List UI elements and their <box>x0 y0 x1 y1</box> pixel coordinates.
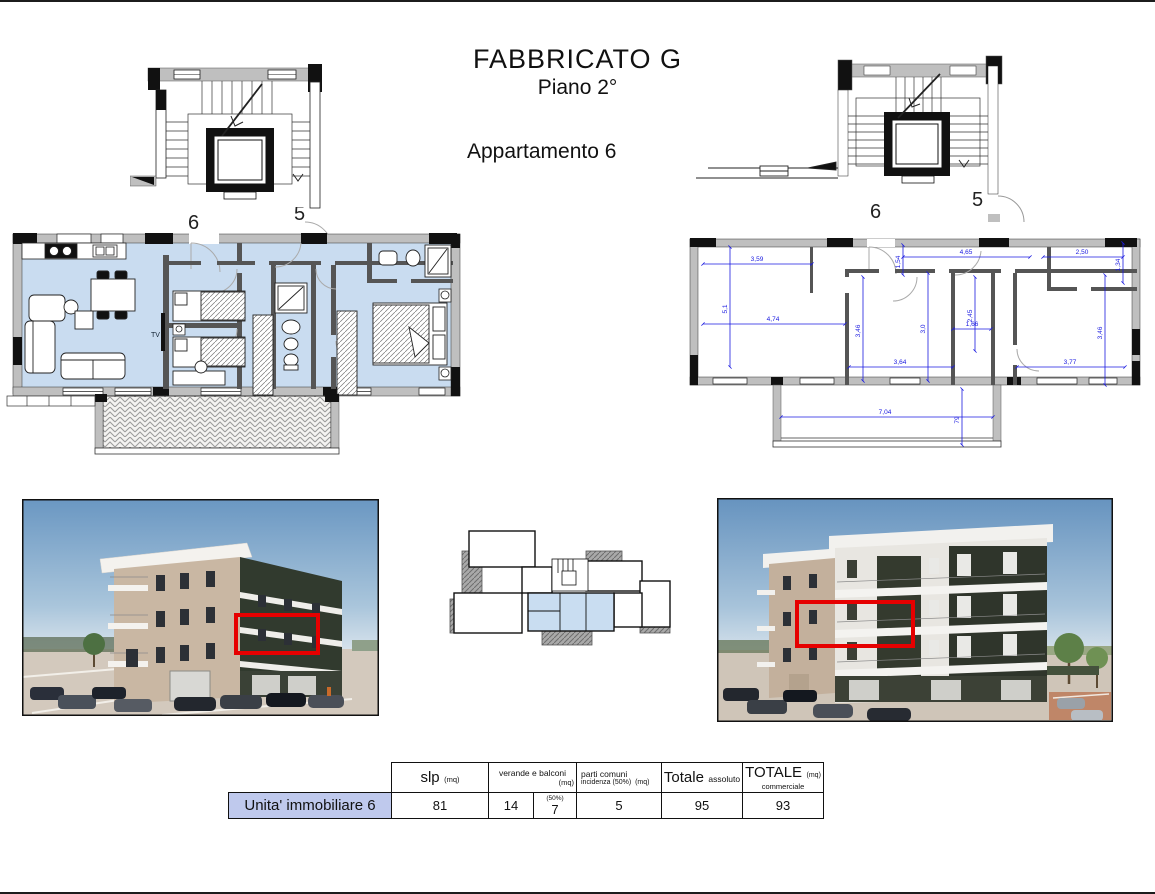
dimension-labels: 3,59 4,74 4,65 2,50 1,66 3,64 3,77 7,04 … <box>722 249 1122 424</box>
adjacent-unit-label: 5 <box>972 189 983 211</box>
dim-living-h: 5,1 <box>722 304 729 313</box>
tv-unit <box>161 313 165 351</box>
dim-hall-w: 3,64 <box>894 359 907 366</box>
terrace <box>773 385 1001 447</box>
value-verande-50: (50%) 7 <box>534 793 577 819</box>
col-header-parti-comuni: parti comuni incidenza (50%) (mq) <box>577 763 662 793</box>
key-plan <box>444 523 676 649</box>
keyplan-highlighted-unit <box>528 593 614 631</box>
dim-terrace-h: 79 <box>954 416 961 424</box>
hills <box>717 640 777 653</box>
dim-terrace-w: 7,04 <box>879 409 892 416</box>
single-bed-2 <box>173 337 245 367</box>
person <box>327 687 331 696</box>
area-summary-table: slp (mq) verande e balconi (mq) parti co… <box>228 762 824 819</box>
building-render-left <box>22 499 379 716</box>
double-bed <box>373 303 447 365</box>
entrance-opening <box>189 233 219 244</box>
terrace <box>95 394 339 454</box>
kitchen-counter <box>22 243 126 259</box>
stairwell-plan-left <box>130 64 350 222</box>
dimension-lines <box>703 243 1125 445</box>
single-bed-1 <box>173 291 245 321</box>
table-spacer <box>229 763 392 793</box>
tv-label: TV <box>151 332 160 339</box>
stairwell-plan-right: 6 5 <box>688 50 1033 222</box>
keyplan-stairwell <box>552 559 588 591</box>
entrance-opening <box>867 239 895 247</box>
furnished-floor-plan: 6 5 <box>5 207 465 465</box>
dim-living-w: 4,74 <box>767 316 780 323</box>
dimensioned-floor-plan: 3,59 4,74 4,65 2,50 1,66 3,64 3,77 7,04 … <box>685 217 1145 465</box>
unit-number-label: 6 <box>188 212 199 234</box>
wardrobe-right <box>337 311 357 395</box>
dim-living-top-w: 3,59 <box>751 256 764 263</box>
hills-right <box>352 640 379 651</box>
dim-bedroom1-h: 3,0 <box>920 324 927 333</box>
garage-door <box>170 671 210 701</box>
walkway-left <box>7 396 95 406</box>
elevator-shaft <box>206 128 274 199</box>
building-render-right <box>717 498 1113 722</box>
dim-living-right-h: 3,46 <box>855 324 862 337</box>
dim-bedroom2-top-h: 1,34 <box>1115 258 1122 271</box>
row-label-unit: Unita' immobiliare 6 <box>229 793 392 819</box>
col-header-slp: slp (mq) <box>392 763 489 793</box>
landing-wall <box>696 162 838 178</box>
wardrobe-left <box>253 315 273 395</box>
building-left-wing <box>757 548 843 698</box>
dim-bedroom2-top-w: 2,50 <box>1076 249 1089 256</box>
col-header-totale-commerciale: TOTALE (mq) commerciale <box>743 763 824 793</box>
nightstand <box>173 324 185 335</box>
dim-bedroom1-w: 4,65 <box>960 249 973 256</box>
value-slp: 81 <box>392 793 489 819</box>
value-totale-commerciale: 93 <box>743 793 824 819</box>
parking-right <box>1049 692 1111 721</box>
drawing-sheet: FABBRICATO G Piano 2° Appartamento 6 <box>0 0 1155 894</box>
dim-entry-h: 1,54 <box>895 255 902 268</box>
col-header-totale-assoluto: Totale assoluto <box>662 763 743 793</box>
value-totale-assoluto: 95 <box>662 793 743 819</box>
building-main <box>829 524 1053 703</box>
apartment-label: Appartamento 6 <box>467 140 616 164</box>
elevator-shaft <box>884 112 950 183</box>
value-verande: 14 <box>489 793 534 819</box>
dim-bedroom2-h: 3,46 <box>1097 326 1104 339</box>
dim-bath-h: 2,45 <box>967 309 974 322</box>
value-parti-comuni: 5 <box>577 793 662 819</box>
dim-bedroom2-w: 3,77 <box>1064 359 1077 366</box>
adjacent-unit-label: 5 <box>294 207 305 225</box>
col-header-verande: verande e balconi (mq) <box>489 763 577 793</box>
